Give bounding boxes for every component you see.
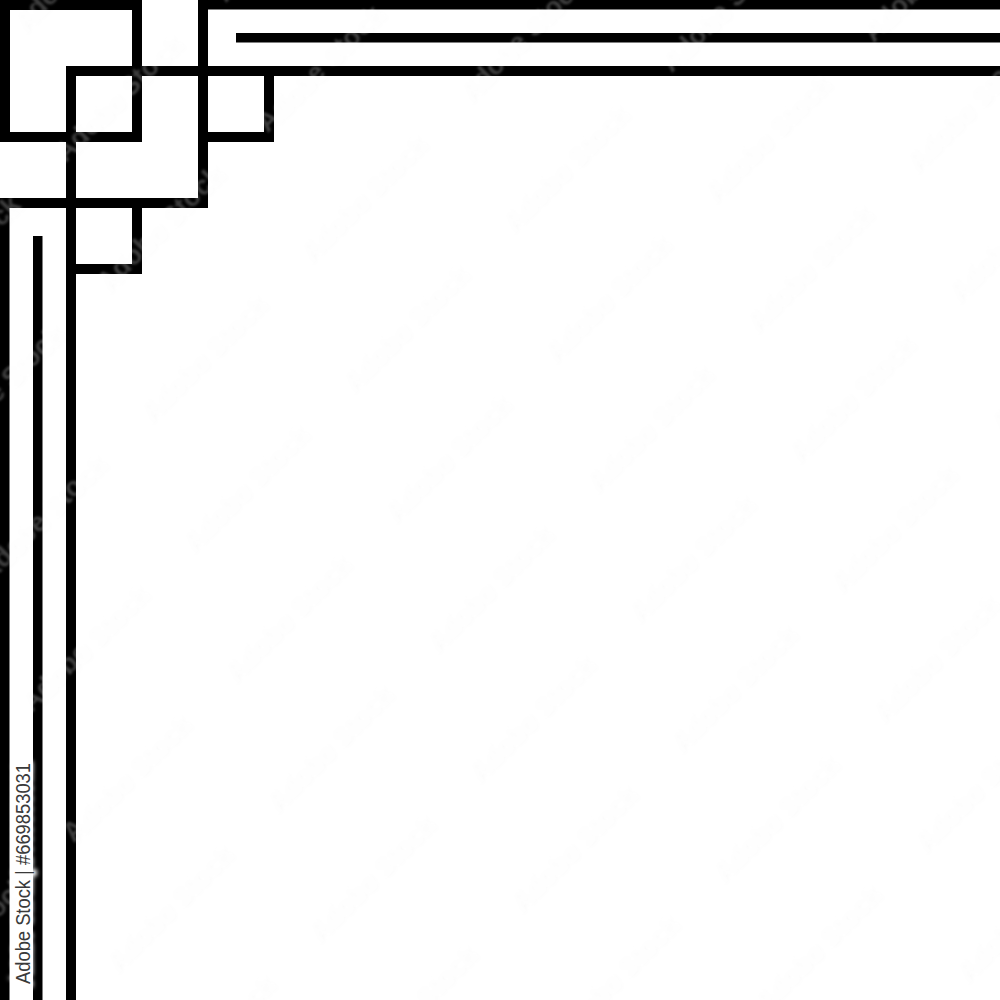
svg-text:Adobe Stock | #669853031: Adobe Stock | #669853031: [12, 763, 34, 984]
